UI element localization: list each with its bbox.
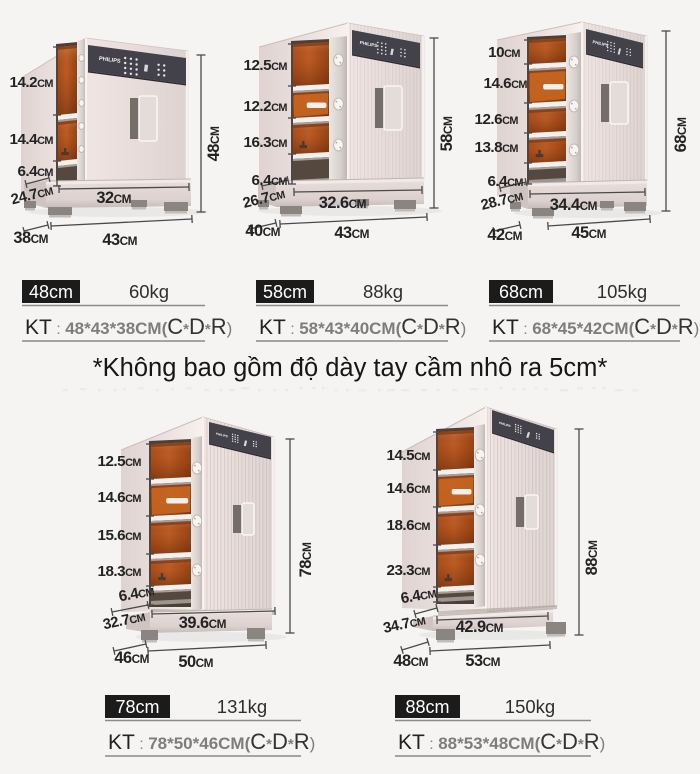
svg-text:40CM: 40CM: [245, 222, 280, 240]
svg-text:43CM: 43CM: [334, 224, 369, 242]
svg-text:58CM: 58CM: [438, 116, 456, 151]
svg-text:42.9CM: 42.9CM: [456, 618, 504, 636]
svg-text:38CM: 38CM: [13, 229, 48, 247]
svg-text:*Không bao gồm độ dày tay cầm: *Không bao gồm độ dày tay cầm nhô ra 5cm…: [93, 354, 608, 382]
svg-text:48CM: 48CM: [205, 126, 223, 161]
svg-text:68cm: 68cm: [499, 282, 543, 302]
svg-text:32.6CM: 32.6CM: [319, 194, 367, 212]
svg-text:58cm: 58cm: [263, 282, 307, 302]
svg-text:39.6CM: 39.6CM: [179, 614, 227, 632]
svg-text:105kg: 105kg: [597, 281, 647, 302]
svg-text:88CM: 88CM: [583, 540, 601, 575]
svg-text:78cm: 78cm: [115, 697, 159, 717]
svg-text:48cm: 48cm: [29, 282, 73, 302]
svg-text:150kg: 150kg: [505, 696, 555, 717]
svg-text:88kg: 88kg: [363, 281, 403, 302]
svg-text:131kg: 131kg: [217, 696, 267, 717]
svg-text:50CM: 50CM: [178, 653, 213, 671]
svg-text:46CM: 46CM: [114, 649, 149, 667]
svg-text:88cm: 88cm: [405, 697, 449, 717]
svg-text:32CM: 32CM: [96, 189, 131, 207]
svg-text:78CM: 78CM: [297, 542, 315, 577]
svg-text:68CM: 68CM: [672, 117, 690, 152]
svg-text:48CM: 48CM: [393, 652, 428, 670]
svg-text:45CM: 45CM: [571, 224, 606, 242]
svg-text:34.4CM: 34.4CM: [550, 196, 598, 214]
svg-text:60kg: 60kg: [129, 281, 169, 302]
svg-text:53CM: 53CM: [465, 652, 500, 670]
svg-text:43CM: 43CM: [102, 231, 137, 249]
svg-text:42CM: 42CM: [487, 226, 522, 244]
